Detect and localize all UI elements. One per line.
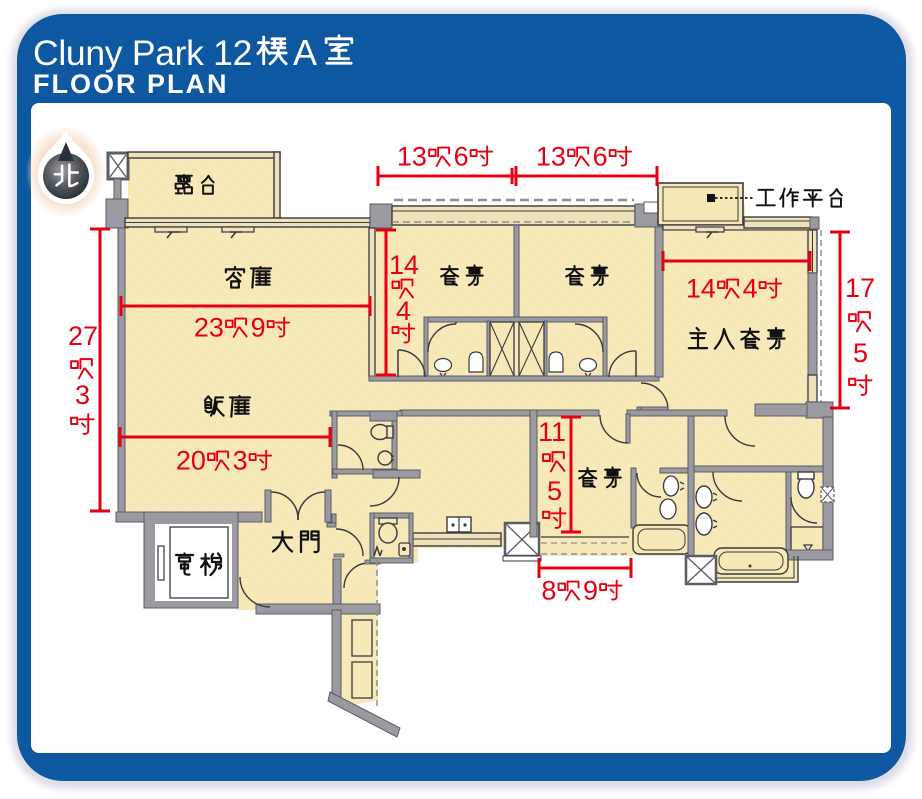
svg-text:FLOOR PLAN: FLOOR PLAN <box>33 69 229 99</box>
svg-text:14: 14 <box>389 250 419 280</box>
svg-text:A: A <box>293 32 317 73</box>
svg-text:Cluny Park 12: Cluny Park 12 <box>33 33 252 73</box>
svg-text:23: 23 <box>194 313 224 343</box>
svg-text:5: 5 <box>853 338 868 368</box>
svg-text:13: 13 <box>397 142 427 172</box>
svg-text:3: 3 <box>75 380 90 410</box>
svg-text:3: 3 <box>233 446 248 476</box>
svg-text:14: 14 <box>686 274 716 304</box>
svg-text:13: 13 <box>536 142 566 172</box>
svg-text:4: 4 <box>396 296 411 326</box>
svg-text:11: 11 <box>538 417 566 447</box>
svg-text:5: 5 <box>547 476 562 506</box>
svg-text:6: 6 <box>454 142 469 172</box>
svg-text:27: 27 <box>68 321 98 351</box>
svg-text:8: 8 <box>541 576 556 606</box>
svg-text:20: 20 <box>176 446 206 476</box>
svg-text:9: 9 <box>251 313 266 343</box>
svg-text:6: 6 <box>593 142 608 172</box>
svg-text:4: 4 <box>743 274 758 304</box>
svg-text:9: 9 <box>583 576 598 606</box>
svg-text:17: 17 <box>845 273 875 303</box>
